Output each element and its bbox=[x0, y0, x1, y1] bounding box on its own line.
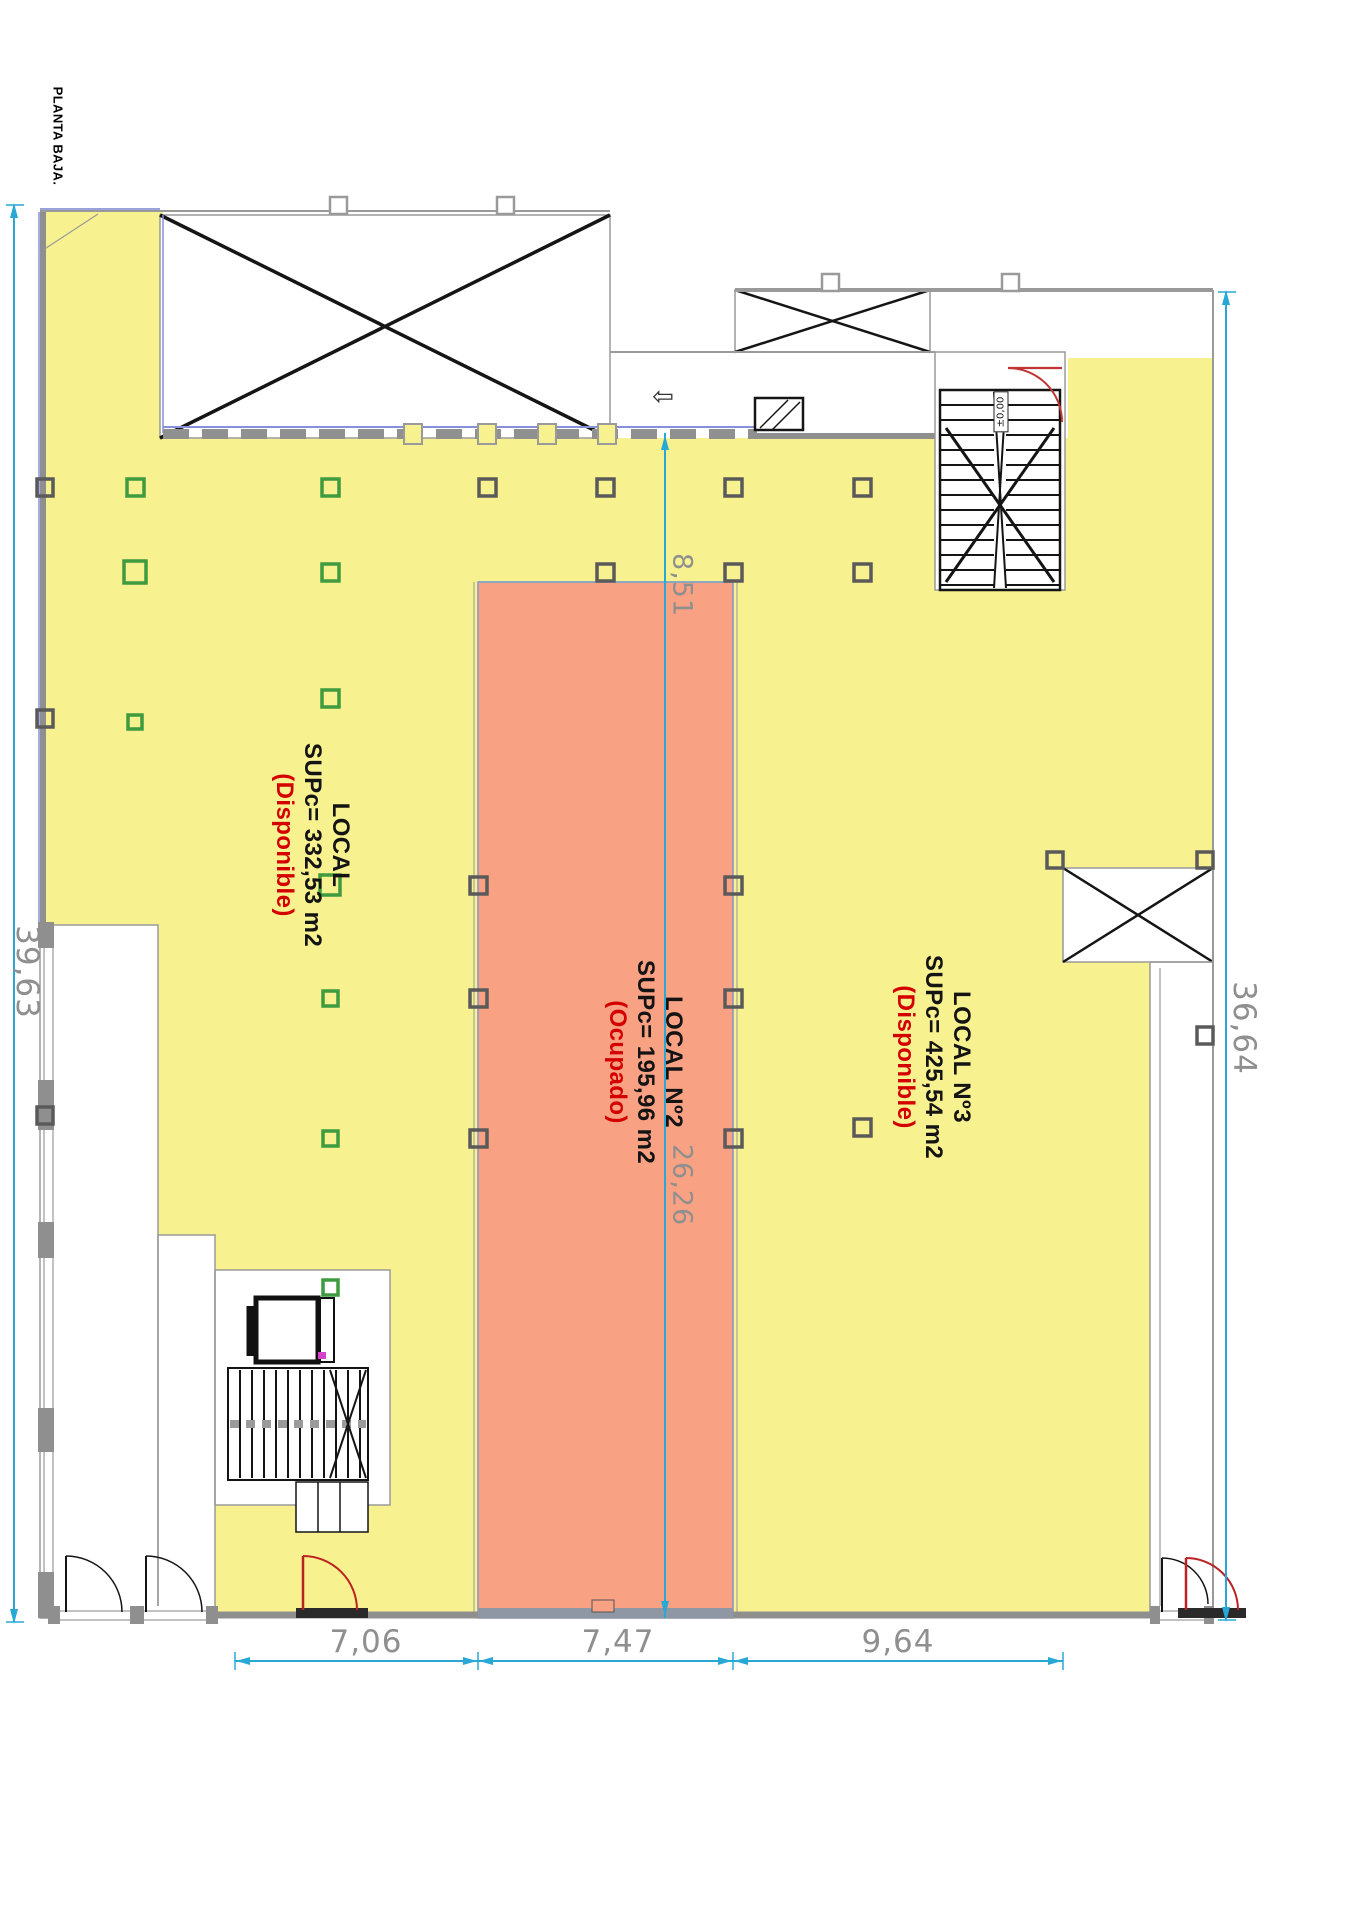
local-2-status: (Ocupado) bbox=[603, 960, 631, 1164]
void-shaft-right bbox=[1063, 868, 1213, 962]
plan-title: PLANTA BAJA. bbox=[51, 87, 66, 186]
local-3-name: LOCAL Nº3 bbox=[947, 955, 975, 1159]
dimension-center: 26,26 bbox=[667, 1144, 698, 1226]
dimension-top: 8,51 bbox=[667, 553, 698, 617]
dimension-bottom-3: 9,64 bbox=[861, 1624, 934, 1660]
local-3-status: (Disponible) bbox=[891, 955, 919, 1159]
dimension-bottom-1: 7,06 bbox=[329, 1624, 402, 1660]
direction-arrow-icon: ⇦ bbox=[652, 384, 674, 410]
floor-plan-canvas: PLANTA BAJA. LOCAL SUPc= 332,53 m2 (Disp… bbox=[0, 0, 1357, 1920]
elevator-bottom-left bbox=[250, 1298, 334, 1362]
dimension-left: 39,63 bbox=[9, 925, 45, 1019]
vent-box bbox=[755, 398, 803, 430]
local-1-label: LOCAL SUPc= 332,53 m2 (Disponible) bbox=[270, 743, 354, 947]
dimension-bottom-2: 7,47 bbox=[581, 1624, 654, 1660]
void-shaft-top-middle bbox=[735, 290, 930, 352]
staircase-top-right bbox=[935, 352, 1065, 590]
local-2-name: LOCAL Nº2 bbox=[659, 960, 687, 1164]
local-1-name: LOCAL bbox=[326, 743, 354, 947]
dimension-right: 36,64 bbox=[1226, 981, 1262, 1075]
local-3-area: SUPc= 425,54 m2 bbox=[919, 955, 947, 1159]
level-marker: ±0,00 bbox=[994, 392, 1009, 433]
local-3-label: LOCAL Nº3 SUPc= 425,54 m2 (Disponible) bbox=[891, 955, 975, 1159]
local-1-status: (Disponible) bbox=[270, 743, 298, 947]
void-shaft-top-left bbox=[160, 215, 610, 438]
local-2-label: LOCAL Nº2 SUPc= 195,96 m2 (Ocupado) bbox=[603, 960, 687, 1164]
local-1-area: SUPc= 332,53 m2 bbox=[298, 743, 326, 947]
local-2-area: SUPc= 195,96 m2 bbox=[631, 960, 659, 1164]
